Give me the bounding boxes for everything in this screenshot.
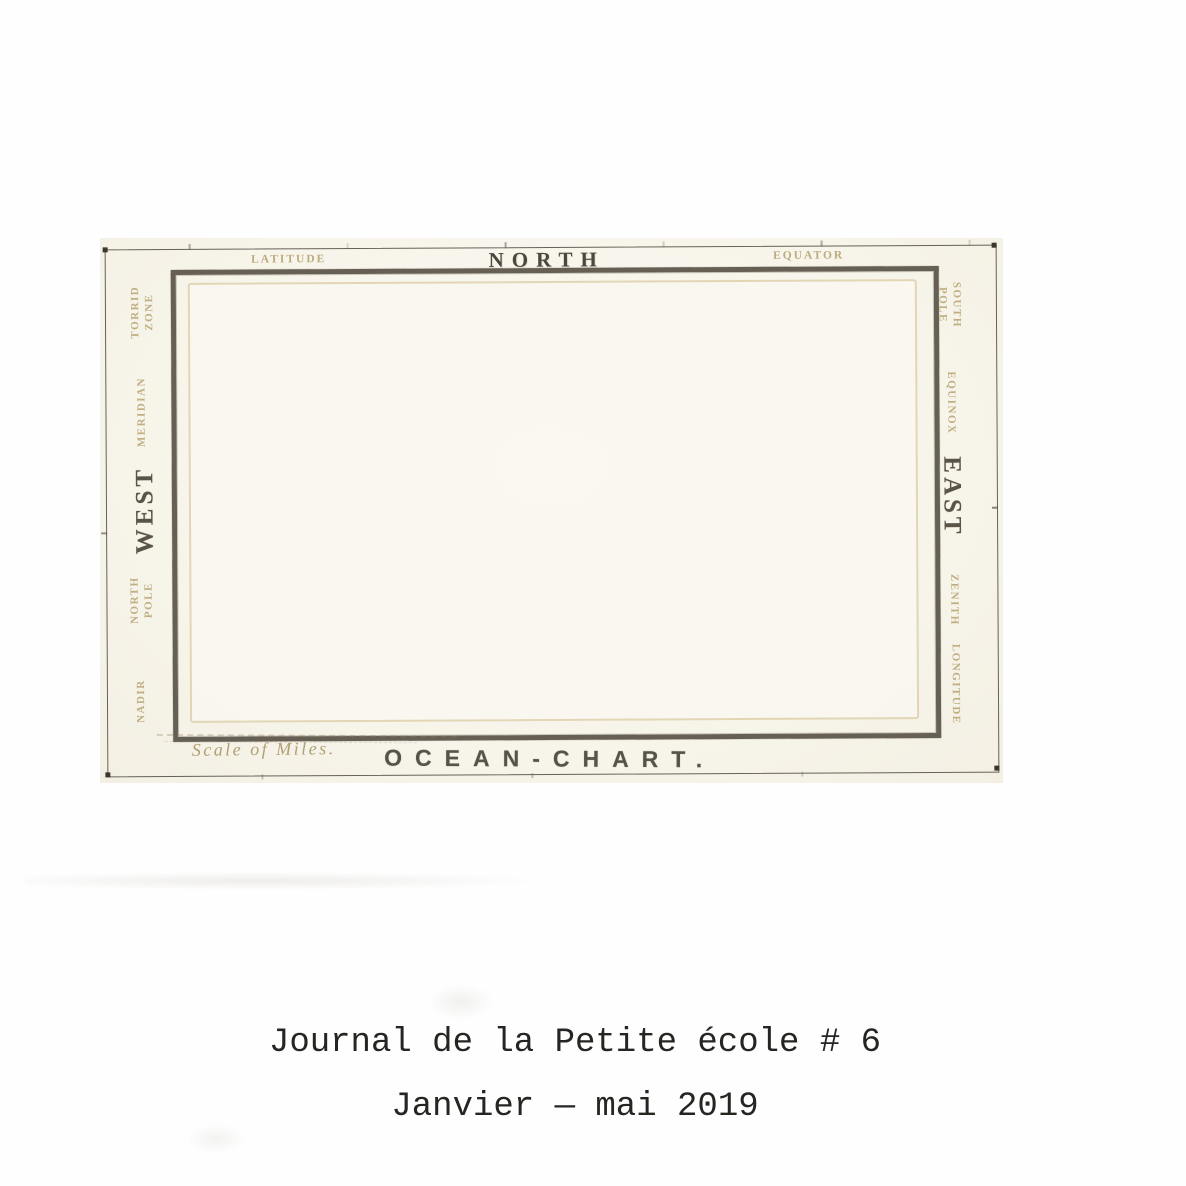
scale-bar (157, 734, 457, 738)
scan-smudge (25, 872, 540, 890)
map-plate: LATITUDE NORTH EQUATOR TORRID ZONE MERID… (99, 236, 1005, 786)
scale-of-miles-label: Scale of Miles. (192, 738, 336, 761)
caption-title: Journal de la Petite école # 6 (0, 1022, 1150, 1065)
ocean-chart-scan: LATITUDE NORTH EQUATOR TORRID ZONE MERID… (100, 238, 1003, 783)
scan-smudge (428, 984, 494, 1020)
scan-smudge (186, 1124, 246, 1154)
caption-block: Journal de la Petite école # 6 Janvier —… (0, 1022, 1150, 1128)
caption-dates: Janvier — mai 2019 (0, 1086, 1150, 1129)
map-bottom-text: Scale of Miles. OCEAN-CHART. (99, 236, 1005, 786)
ocean-chart-title: OCEAN-CHART. (384, 745, 715, 774)
scanned-page: LATITUDE NORTH EQUATOR TORRID ZONE MERID… (0, 0, 1186, 1186)
